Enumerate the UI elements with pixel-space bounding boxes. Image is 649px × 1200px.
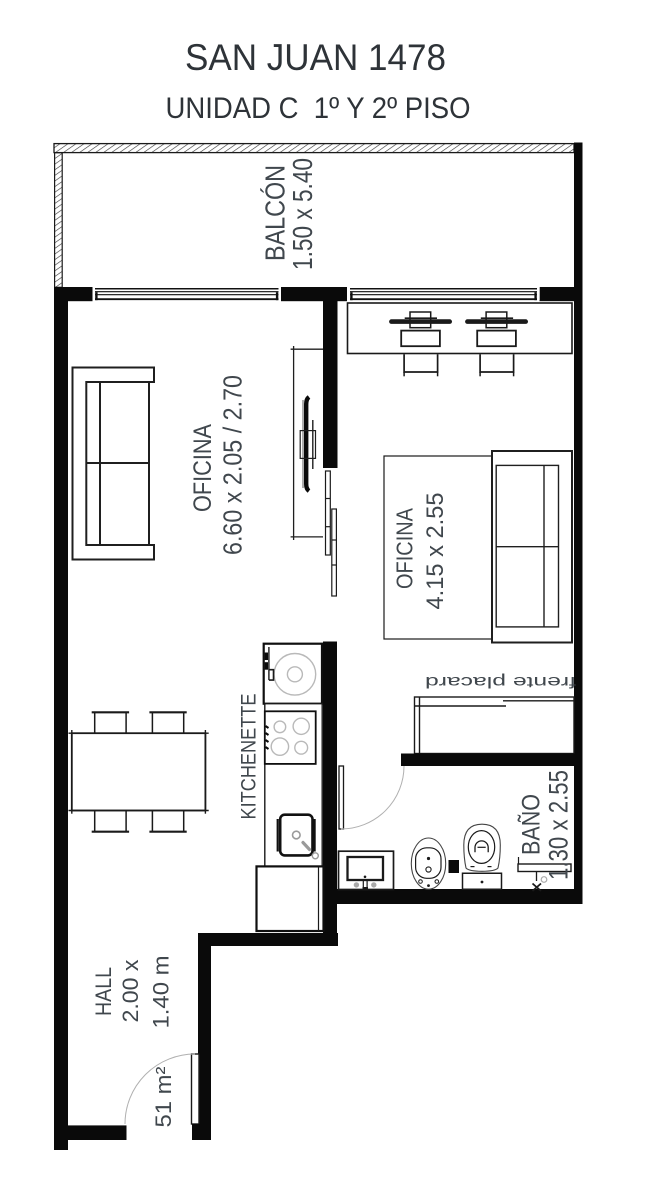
svg-text:UNIDAD C 1º Y 2º PISO: UNIDAD C 1º Y 2º PISO — [166, 92, 471, 125]
svg-text:SAN JUAN 1478: SAN JUAN 1478 — [185, 37, 446, 78]
svg-text:1.30 x 2.55: 1.30 x 2.55 — [544, 770, 574, 880]
svg-text:frente placard: frente placard — [425, 673, 576, 690]
svg-text:51 m²: 51 m² — [151, 1067, 176, 1128]
svg-text:OFICINA: OFICINA — [392, 507, 418, 589]
svg-text:KITCHENETTE: KITCHENETTE — [237, 694, 261, 820]
svg-text:6.60 x 2.05 / 2.70: 6.60 x 2.05 / 2.70 — [218, 375, 248, 555]
svg-text:HALL: HALL — [91, 967, 116, 1016]
svg-text:OFICINA: OFICINA — [189, 424, 217, 512]
svg-text:2.00 x: 2.00 x — [118, 960, 143, 1023]
svg-text:1.50 x 5.40: 1.50 x 5.40 — [287, 158, 318, 270]
svg-text:BAÑO: BAÑO — [517, 794, 546, 855]
svg-text:BALCÓN: BALCÓN — [260, 165, 291, 261]
svg-text:4.15 x 2.55: 4.15 x 2.55 — [422, 493, 449, 610]
svg-text:1.40 m: 1.40 m — [149, 956, 174, 1029]
